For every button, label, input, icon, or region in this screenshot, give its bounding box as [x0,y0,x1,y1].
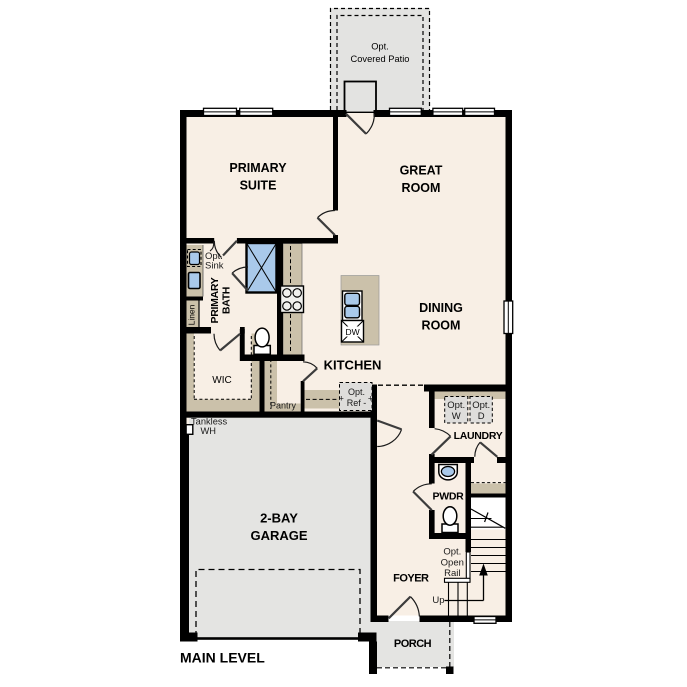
svg-text:Sink: Sink [205,260,224,271]
svg-text:Pantry: Pantry [270,400,297,410]
svg-text:+: + [339,394,344,404]
svg-text:GARAGE: GARAGE [250,528,307,543]
svg-text:Opt.: Opt. [348,387,365,397]
svg-text:+: + [368,394,373,404]
svg-text:WIC: WIC [212,375,231,386]
svg-text:Opt.: Opt. [371,41,389,51]
svg-text:LAUNDRY: LAUNDRY [454,430,503,442]
svg-text:2-BAY: 2-BAY [260,511,298,526]
svg-text:ROOM: ROOM [422,319,461,333]
svg-text:PRIMARY: PRIMARY [229,161,287,175]
svg-text:WH: WH [201,426,217,436]
svg-text:GREAT: GREAT [400,164,443,178]
svg-text:Opt.: Opt. [443,546,461,557]
svg-text:Opt.: Opt. [447,400,465,411]
svg-text:Linen: Linen [187,304,197,325]
svg-text:PORCH: PORCH [394,638,432,650]
svg-text:Rail: Rail [444,568,460,579]
svg-text:SUITE: SUITE [240,178,277,192]
svg-text:FOYER: FOYER [393,573,429,585]
svg-text:Opt.: Opt. [472,400,490,411]
svg-text:MAIN LEVEL: MAIN LEVEL [180,650,265,666]
svg-text:BATH: BATH [221,287,233,314]
svg-text:Open: Open [441,557,464,568]
svg-text:W: W [452,411,461,422]
svg-text:Up: Up [432,595,444,606]
svg-text:PRIMARY: PRIMARY [209,277,221,323]
svg-text:ROOM: ROOM [402,181,441,195]
svg-text:PWDR: PWDR [433,491,465,503]
svg-text:KITCHEN: KITCHEN [324,358,382,373]
svg-text:DW: DW [346,327,360,337]
svg-text:Covered Patio: Covered Patio [351,54,410,64]
svg-text:D: D [478,411,485,422]
svg-text:Ref -: Ref - [347,398,367,408]
svg-text:DINING: DINING [419,301,463,315]
